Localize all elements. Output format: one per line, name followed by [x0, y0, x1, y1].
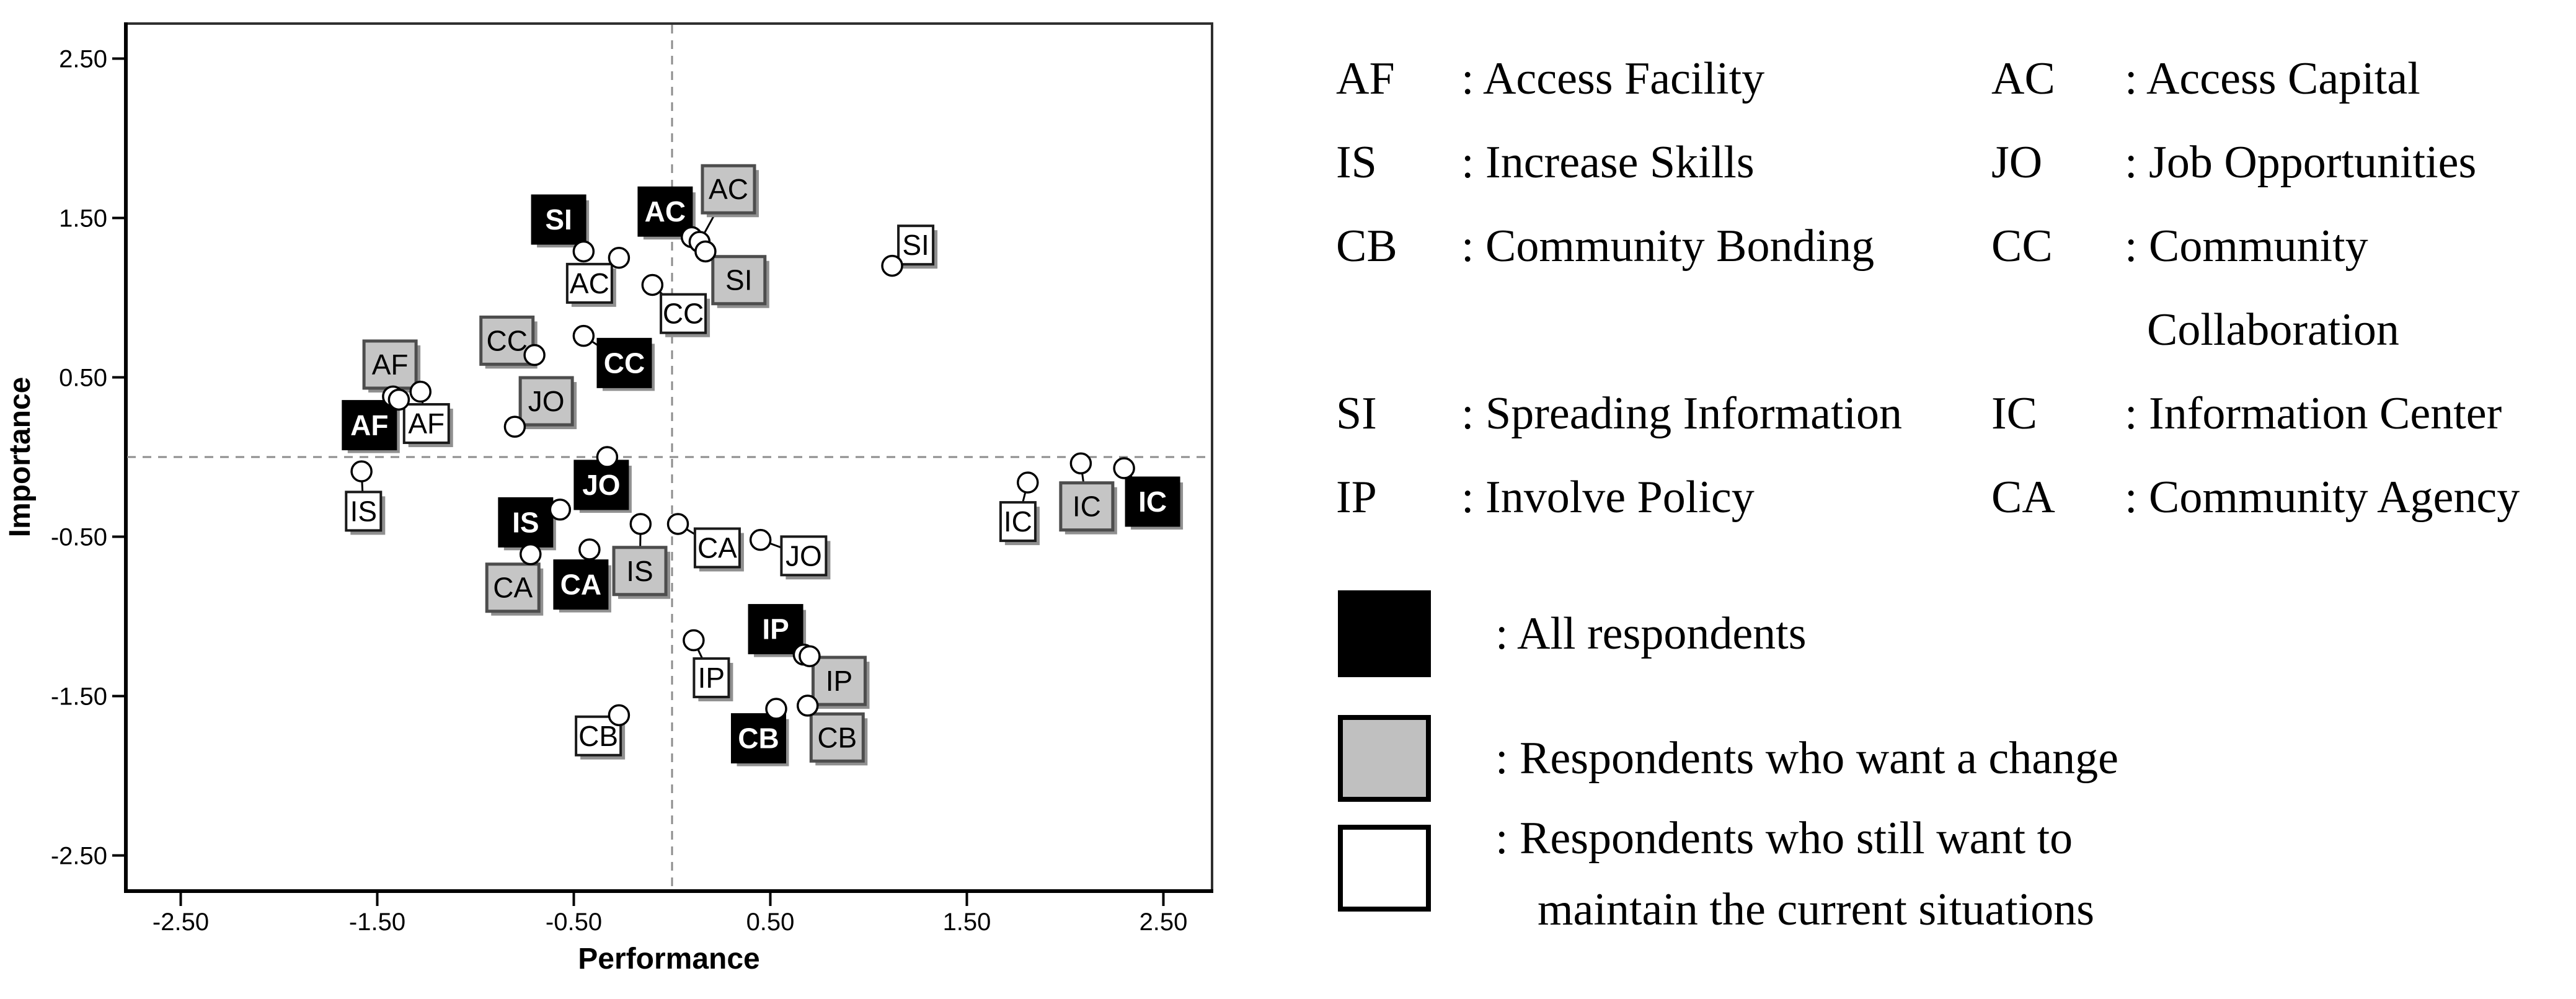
marker-labels: AFACISJOCBCCSIICIPCAAFACISJOCBCCSIICIPCA…	[343, 166, 1183, 766]
point-CC-white	[642, 275, 662, 295]
point-AF-white	[410, 382, 430, 402]
point-CB-gray	[798, 696, 818, 716]
key-item-gray: : Respondents who want a change	[1338, 715, 2572, 802]
y-tick-label: -1.50	[51, 683, 107, 711]
abbrev-code: IP	[1336, 456, 1377, 539]
marker-code: AC	[645, 195, 686, 228]
y-tick-label: -2.50	[51, 843, 107, 870]
x-tick-label: 1.50	[943, 908, 991, 936]
marker-code: CC	[604, 347, 645, 379]
marker-code: CB	[738, 722, 779, 755]
abbrev-row-4: Collaboration	[1336, 288, 2570, 372]
abbrev-meaning: : Access Capital	[2125, 37, 2420, 121]
marker-code: IS	[512, 506, 539, 538]
point-JO-white	[751, 530, 771, 550]
point-IP-gray	[800, 646, 820, 666]
x-tick-label: 0.50	[746, 908, 795, 936]
marker-IP-white: IP	[694, 659, 733, 701]
marker-code: AF	[372, 349, 409, 381]
x-tick-label: 2.50	[1140, 908, 1188, 936]
point-IS-black	[550, 500, 570, 520]
figure-page: -2.50-1.50-0.500.501.502.502.501.500.50-…	[0, 0, 2576, 999]
marker-code: CA	[697, 531, 737, 564]
marker-code: AF	[350, 409, 388, 442]
white-swatch	[1338, 825, 1431, 912]
point-AC-white	[609, 248, 629, 268]
abbrev-code: CA	[1991, 456, 2055, 539]
marker-code: JO	[582, 469, 620, 501]
marker-SI-black: SI	[533, 196, 589, 247]
point-CB-white	[609, 705, 629, 725]
point-JO-gray	[505, 417, 524, 437]
marker-JO-white: JO	[781, 536, 830, 579]
point-CC-black	[573, 326, 593, 346]
point-IS-white	[352, 461, 371, 481]
key-label-line: : Respondents who want a change	[1495, 732, 2118, 785]
point-SI-gray	[696, 241, 715, 261]
abbrev-row-2: IS: Increase SkillsJO: Job Opportunities	[1336, 121, 2570, 205]
point-CA-white	[668, 514, 688, 534]
marker-CC-white: CC	[661, 295, 710, 337]
marker-SI-white: SI	[898, 226, 937, 269]
marker-code: SI	[545, 203, 572, 236]
x-tick-label: -1.50	[349, 908, 405, 936]
ipa-scatter-chart: -2.50-1.50-0.500.501.502.502.501.500.50-…	[0, 0, 1302, 999]
abbrev-row-6: IP: Involve PolicyCA: Community Agency	[1336, 456, 2570, 539]
marker-code: AC	[570, 267, 609, 300]
point-IP-white	[684, 631, 704, 650]
abbrev-code: SI	[1336, 372, 1377, 456]
marker-CA-black: CA	[555, 561, 611, 613]
key-label-line: : All respondents	[1495, 608, 1807, 660]
marker-code: CC	[663, 298, 704, 330]
marker-code: CA	[493, 572, 533, 604]
point-IS-gray	[631, 514, 650, 534]
key-label-line: : Respondents who still want to	[1495, 803, 2094, 874]
y-tick-label: -0.50	[51, 524, 107, 551]
marker-code: SI	[725, 264, 752, 296]
abbrev-meaning: : Increase Skills	[1461, 121, 1755, 205]
x-tick-label: -0.50	[546, 908, 602, 936]
marker-code: IS	[350, 495, 377, 527]
abbrev-code: CB	[1336, 205, 1397, 288]
marker-AF-black: AF	[343, 402, 400, 453]
y-tick-label: 0.50	[59, 365, 107, 392]
marker-IS-white: IS	[346, 492, 385, 535]
abbrev-row-1: AF: Access FacilityAC: Access Capital	[1336, 37, 2570, 121]
marker-code: IC	[1073, 491, 1101, 523]
marker-IC-gray: IC	[1061, 483, 1117, 535]
marker-AC-gray: AC	[702, 166, 759, 217]
marker-CA-white: CA	[695, 528, 744, 571]
point-IC-white	[1018, 473, 1038, 492]
y-axis-title: Importance	[4, 377, 37, 538]
marker-code: CB	[578, 720, 618, 752]
abbrev-row-5: SI: Spreading InformationIC: Information…	[1336, 372, 2570, 456]
abbrev-code: AF	[1336, 37, 1395, 121]
marker-JO-black: JO	[575, 461, 632, 513]
marker-SI-gray: SI	[713, 257, 769, 308]
marker-CB-gray: CB	[811, 714, 867, 765]
key-label: : All respondents	[1495, 590, 1807, 677]
y-tick-label: 2.50	[59, 46, 107, 73]
key-item-white: : Respondents who still want tomaintain …	[1338, 825, 2572, 912]
marker-code: CC	[486, 324, 527, 357]
point-SI-black	[573, 241, 593, 261]
black-swatch	[1338, 590, 1431, 677]
abbrev-row-3: CB: Community BondingCC: Community	[1336, 205, 2570, 288]
abbrev-code: AC	[1991, 37, 2055, 121]
marker-AF-white: AF	[404, 404, 453, 447]
marker-IC-black: IC	[1126, 478, 1183, 530]
gray-swatch	[1338, 715, 1431, 802]
x-tick-label: -2.50	[153, 908, 209, 936]
key-label: : Respondents who still want tomaintain …	[1495, 803, 2094, 946]
marker-CB-black: CB	[732, 715, 789, 766]
marker-code: IP	[826, 665, 852, 697]
abbrev-meaning: : Access Facility	[1461, 37, 1764, 121]
marker-code: CA	[560, 569, 601, 601]
marker-IC-white: IC	[1001, 502, 1040, 545]
point-IC-gray	[1071, 453, 1091, 473]
marker-IS-gray: IS	[614, 548, 670, 599]
marker-code: JO	[786, 539, 822, 572]
point-IC-black	[1114, 458, 1134, 478]
point-JO-black	[597, 447, 617, 467]
marker-code: AF	[408, 407, 445, 440]
marker-IP-gray: IP	[813, 657, 869, 709]
key-item-black: : All respondents	[1338, 590, 2572, 677]
marker-AC-white: AC	[567, 264, 616, 307]
marker-IS-black: IS	[500, 499, 556, 550]
key-label-line: maintain the current situations	[1495, 874, 2094, 946]
abbrev-code: IS	[1336, 121, 1377, 205]
point-CA-gray	[521, 544, 541, 564]
abbrev-meaning: : Community Agency	[2125, 456, 2520, 539]
marker-JO-gray: JO	[520, 378, 577, 429]
marker-code: SI	[902, 229, 929, 261]
abbrev-code: CC	[1991, 205, 2053, 288]
marker-code: IP	[762, 613, 789, 646]
abbrev-meaning: : Spreading Information	[1461, 372, 1902, 456]
point-AF-gray	[389, 389, 409, 409]
abbrev-meaning: : Community	[2125, 205, 2368, 288]
point-SI-white	[882, 256, 902, 276]
abbrev-code: JO	[1991, 121, 2042, 205]
abbrev-meaning: : Information Center	[2125, 372, 2502, 456]
point-CB-black	[766, 699, 786, 719]
key-label: : Respondents who want a change	[1495, 715, 2118, 802]
abbrev-meaning: : Involve Policy	[1461, 456, 1755, 539]
marker-code: IP	[698, 662, 725, 694]
abbrev-code: IC	[1991, 372, 2037, 456]
marker-code: AC	[709, 173, 748, 205]
marker-CA-gray: CA	[487, 564, 543, 616]
abbrev-meaning: : Community Bonding	[1461, 205, 1874, 288]
marker-code: IS	[626, 555, 653, 587]
marker-code: JO	[528, 385, 565, 417]
marker-code: IC	[1004, 505, 1032, 538]
y-tick-label: 1.50	[59, 205, 107, 233]
marker-code: IC	[1138, 486, 1167, 518]
abbrev-meaning-continued: Collaboration	[2147, 288, 2399, 372]
marker-CC-black: CC	[598, 339, 655, 391]
point-CA-black	[580, 539, 600, 559]
marker-code: CB	[817, 721, 857, 753]
abbreviation-legend: AF: Access FacilityAC: Access CapitalIS:…	[1336, 37, 2570, 539]
x-axis-title: Performance	[578, 943, 759, 975]
point-CC-gray	[524, 345, 544, 365]
abbrev-meaning: : Job Opportunities	[2125, 121, 2476, 205]
